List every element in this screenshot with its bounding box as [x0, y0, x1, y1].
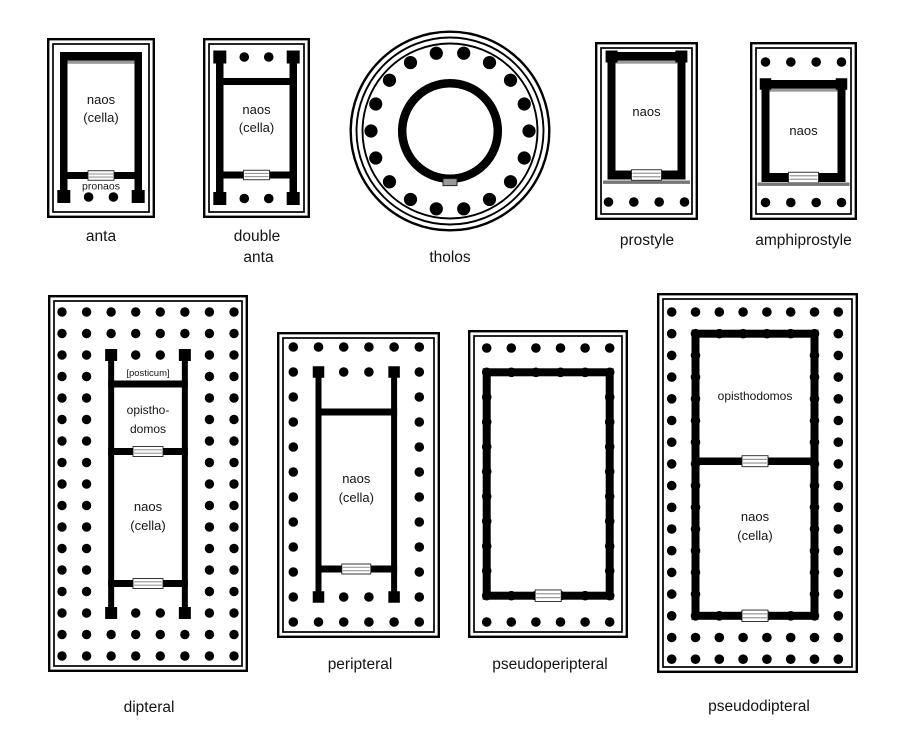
- dipteral-plan: [49, 296, 247, 671]
- pseudodipteral-cella-label: (cella): [737, 528, 772, 543]
- pseudoperipteral-plan: [469, 331, 627, 637]
- caption-prostyle: prostyle: [620, 232, 674, 249]
- temple-plans-svg: naos (cella) pronaos naos (cella) naos n…: [0, 0, 900, 750]
- pseudodipteral-naos-label: naos: [741, 509, 770, 524]
- anta-pronaos-label: pronaos: [82, 181, 120, 193]
- caption-double-anta-2: anta: [243, 249, 274, 266]
- amphiprostyle-naos-label: naos: [789, 123, 818, 138]
- double-anta-cella-label: (cella): [239, 120, 274, 135]
- prostyle-naos-label: naos: [632, 104, 661, 119]
- dipteral-posticum-label: [posticum]: [126, 368, 169, 379]
- caption-dipteral: dipteral: [124, 699, 175, 716]
- dipteral-cella-label: (cella): [130, 518, 165, 533]
- caption-double-anta-1: double: [234, 228, 281, 245]
- pseudodipteral-plan: [658, 294, 857, 672]
- caption-anta: anta: [86, 228, 117, 245]
- peripteral-naos-label: naos: [342, 471, 371, 486]
- caption-amphiprostyle: amphiprostyle: [755, 232, 852, 249]
- peripteral-cella-label: (cella): [339, 490, 374, 505]
- dipteral-opisthodomos-label-line2: domos: [130, 422, 166, 436]
- tholos-plan: [351, 32, 550, 231]
- caption-pseudodipteral: pseudodipteral: [708, 698, 810, 715]
- dipteral-opisthodomos-label-line1: opistho-: [127, 403, 170, 417]
- temple-plans-diagram: naos (cella) pronaos naos (cella) naos n…: [0, 0, 900, 750]
- caption-peripteral: peripteral: [328, 656, 393, 673]
- prostyle-plan: [596, 43, 697, 219]
- anta-naos-label: naos: [87, 92, 116, 107]
- anta-cella-label: (cella): [83, 110, 118, 125]
- double-anta-naos-label: naos: [242, 102, 271, 117]
- dipteral-naos-label: naos: [134, 499, 163, 514]
- caption-tholos: tholos: [429, 249, 471, 266]
- caption-pseudoperipteral: pseudoperipteral: [492, 656, 607, 673]
- pseudodipteral-opisthodomos-label: opisthodomos: [718, 389, 793, 403]
